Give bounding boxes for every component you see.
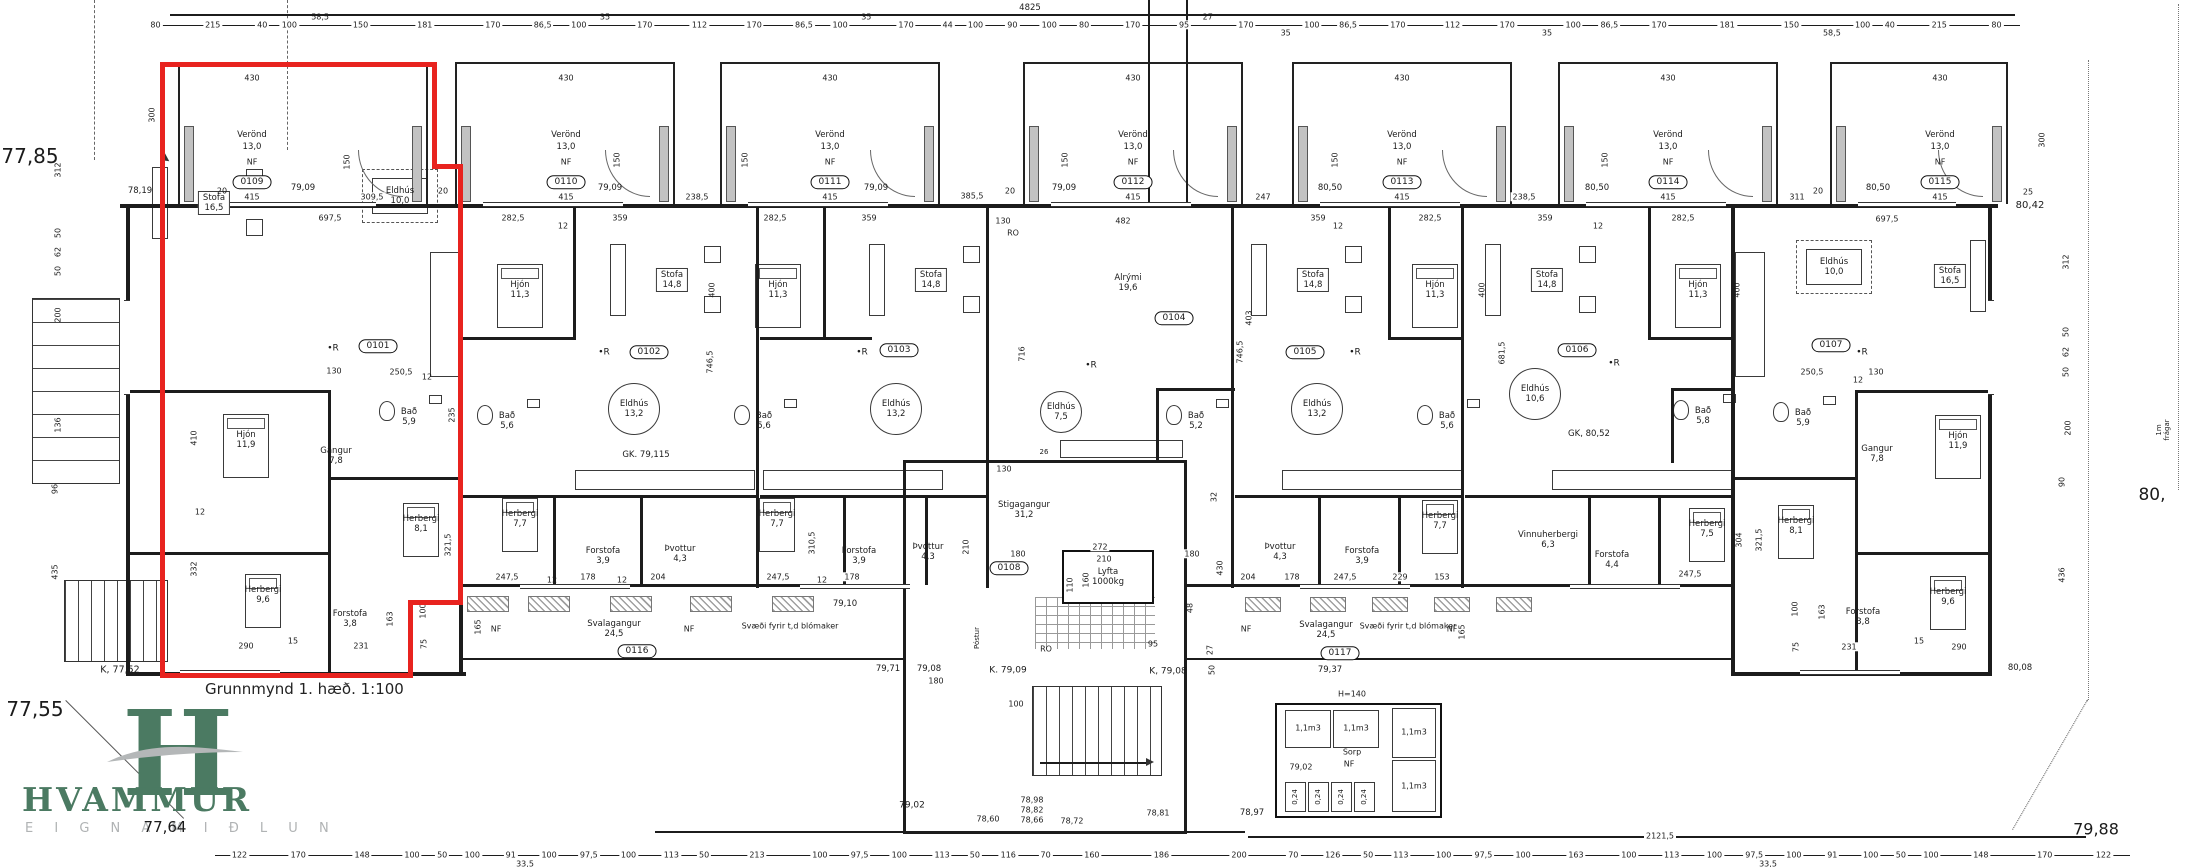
- annotation: K, 77,52: [100, 664, 139, 675]
- wall: [1388, 204, 1391, 340]
- sorp-label: Sorp: [1343, 747, 1361, 756]
- window-strip: [483, 202, 623, 207]
- sorp-label: NF: [1344, 759, 1355, 768]
- wall: [1231, 204, 1234, 588]
- annotation: 96: [50, 484, 59, 494]
- annotation: 332: [189, 561, 198, 576]
- area-label: Stigagangur 31,2: [998, 500, 1050, 520]
- top-dimension: 86,5: [532, 20, 554, 29]
- bottom-dimension: 100: [890, 850, 909, 859]
- chair: [1579, 246, 1596, 263]
- top-dimension: 170: [1498, 20, 1517, 29]
- annotation: 12: [195, 507, 205, 516]
- wall: [1648, 204, 1651, 340]
- bottom-dimension: 100: [1784, 850, 1803, 859]
- porch-elevation: 80,50: [1585, 183, 1609, 193]
- wall: [1465, 495, 1733, 498]
- porch-label: Verönd: [237, 130, 267, 140]
- top-dimension: 112: [690, 20, 709, 29]
- porch-nf: NF: [1663, 157, 1674, 166]
- room-label: Eldhús 10,0: [386, 186, 414, 206]
- top-dimension: 170: [1388, 20, 1407, 29]
- annotation: 290: [1949, 642, 1968, 651]
- smoke-detector-marker: •R: [856, 348, 868, 359]
- room-label: Gangur 7,8: [1861, 444, 1892, 464]
- annotation: 290: [236, 641, 255, 650]
- annotation: 77,55: [6, 698, 63, 722]
- porch-number: 0114: [1649, 175, 1688, 189]
- bottom-dimension: 170: [289, 850, 308, 859]
- annotation: 78,72: [1061, 816, 1084, 825]
- porch-pier: [1029, 126, 1039, 202]
- sorp-label: 0,24: [1314, 789, 1322, 805]
- annotation: Póstur: [973, 627, 981, 649]
- sorp-label: 1,1m3: [1401, 727, 1427, 736]
- annotation: 79,71: [876, 664, 900, 674]
- top-dimension: 58,5: [311, 12, 329, 21]
- annotation: 300: [2037, 132, 2046, 147]
- annotation: 15: [288, 636, 298, 645]
- site-line: [2178, 4, 2179, 490]
- annotation: 136: [53, 417, 62, 432]
- chair: [1579, 296, 1596, 313]
- bottom-dimension: 100: [619, 850, 638, 859]
- toilet: [1773, 402, 1789, 422]
- annotation: 12: [547, 575, 557, 584]
- sorp-label: 0,24: [1360, 789, 1368, 805]
- planter-note: Svæði fyrir t,d blómaker: [1360, 621, 1457, 630]
- room-label: Stofa 14,8: [656, 268, 688, 292]
- wall: [1648, 337, 1734, 340]
- stair-treads-upper: [1035, 597, 1155, 649]
- room-label: Bað 5,8: [1695, 406, 1711, 426]
- sink: [1823, 396, 1836, 405]
- annotation: 20: [217, 186, 227, 195]
- top-dimension: 100: [280, 20, 299, 29]
- bottom-dimension: 100: [810, 850, 829, 859]
- bottom-dimension: 33,5: [516, 859, 534, 867]
- chair: [1345, 246, 1362, 263]
- annotation: 79,08: [917, 664, 941, 674]
- bottom-dimension: 122: [2094, 850, 2113, 859]
- highlight-red-outline: [413, 600, 463, 605]
- bottom-dimension: 163: [1566, 850, 1585, 859]
- bottom-dimension: 50: [1894, 850, 1908, 859]
- annotation: 110: [1065, 577, 1074, 592]
- annotation: 312: [2061, 254, 2070, 269]
- porch-0115: [1830, 62, 2008, 204]
- chair: [963, 246, 980, 263]
- sofa: [869, 244, 885, 316]
- wall: [1735, 477, 1857, 480]
- room-label: Bað 5,6: [1439, 411, 1455, 431]
- wall: [1184, 660, 1187, 834]
- bottom-dimension: 70: [1286, 850, 1300, 859]
- sink: [527, 399, 540, 408]
- annotation: 100: [1790, 601, 1799, 616]
- room-label: Stofa 14,8: [1297, 268, 1329, 292]
- sofa: [1485, 244, 1501, 316]
- top-dimension: 100: [830, 20, 849, 29]
- sorp-label: 78,97: [1240, 808, 1264, 818]
- area-label: Lyfta 1000kg: [1092, 567, 1124, 587]
- bottom-dimension: 113: [662, 850, 681, 859]
- annotation: 282,5: [762, 213, 789, 222]
- entrance-stair: [64, 580, 168, 662]
- room-label: Þvottur 4,3: [913, 542, 944, 562]
- wall: [1187, 658, 1733, 660]
- porch-nf: NF: [1128, 157, 1139, 166]
- annotation: 746,5: [705, 351, 714, 374]
- porch-pier: [1762, 126, 1772, 202]
- wall: [925, 495, 928, 585]
- wall: [553, 495, 556, 585]
- annotation: 50: [2061, 367, 2070, 377]
- highlight-red-outline: [458, 164, 463, 605]
- annotation: 50: [1207, 665, 1216, 675]
- porch-elevation: 79,09: [864, 183, 888, 193]
- room-label: Eldhús 13,2: [882, 399, 910, 419]
- chair: [704, 296, 721, 313]
- room-label: Þvottur 4,3: [665, 544, 696, 564]
- wall: [760, 495, 988, 498]
- plan-title: Grunnmynd 1. hæð. 1:100: [205, 680, 404, 698]
- porch-area: 13,0: [821, 142, 840, 152]
- top-dimension: 35: [861, 12, 871, 21]
- annotation: 359: [1308, 213, 1327, 222]
- top-dimension: 100: [1040, 20, 1059, 29]
- porch-dim: 415: [1123, 192, 1142, 201]
- annotation: 250,5: [388, 367, 415, 376]
- annotation: 282,5: [1670, 213, 1697, 222]
- top-dimension: 181: [1718, 20, 1737, 29]
- logo-swoosh-icon: [105, 740, 245, 770]
- annotation: 385,5: [959, 191, 986, 200]
- kitchen-counter: [1735, 252, 1765, 377]
- room-label: Bað 5,9: [401, 407, 417, 427]
- room-label: Hjón 11,9: [1948, 431, 1967, 451]
- room-label: Forstofa 3,9: [842, 546, 876, 566]
- annotation: 1m frágar: [2155, 419, 2172, 441]
- bottom-dimension: 33,5: [1759, 859, 1777, 867]
- wall: [1158, 388, 1235, 391]
- top-dimension: 40: [255, 20, 269, 29]
- wall: [1184, 460, 1187, 663]
- top-dimension: 170: [483, 20, 502, 29]
- annotation: 20: [1005, 186, 1015, 195]
- porch-pier: [1836, 126, 1846, 202]
- highlight-red-outline: [160, 673, 413, 678]
- room-label: Herbergi 9,6: [245, 585, 282, 605]
- annotation: 247,5: [765, 572, 792, 581]
- annotation: K. 79,09: [989, 666, 1026, 677]
- sink: [1467, 399, 1480, 408]
- wall: [1148, 0, 1150, 204]
- highlight-red-outline: [160, 62, 165, 678]
- annotation: 321,5: [443, 534, 452, 557]
- wall: [1671, 388, 1674, 463]
- annotation: 62: [53, 247, 62, 257]
- top-dimension: 35: [1542, 28, 1552, 37]
- room-label: Herbergi 7,7: [502, 509, 539, 529]
- bottom-dimension: 200: [1229, 850, 1248, 859]
- sorp-label: H=140: [1338, 689, 1366, 698]
- annotation: 78,19: [128, 186, 152, 196]
- room-label: Hjón 11,9: [236, 430, 255, 450]
- window-strip: [1570, 584, 1680, 589]
- annotation: 716: [1017, 346, 1026, 361]
- annotation: 400: [707, 282, 716, 297]
- unit-number: 0104: [1155, 311, 1194, 325]
- annotation: 150: [740, 152, 749, 167]
- site-line: [2088, 60, 2089, 700]
- site-line: [94, 0, 95, 160]
- annotation: 150: [1330, 152, 1339, 167]
- outdoor-stair: [32, 298, 120, 484]
- bottom-dimension: 97,5: [578, 850, 600, 859]
- porch-dim: 430: [242, 73, 261, 82]
- toilet: [1166, 405, 1182, 425]
- kitchen-counter: [1970, 240, 1986, 312]
- top-dimension: 35: [600, 12, 610, 21]
- porch-pier: [726, 126, 736, 202]
- annotation: 247,5: [494, 572, 521, 581]
- annotation: 165: [1457, 624, 1466, 639]
- room-label: Hjón 11,3: [510, 280, 529, 300]
- top-dimension: 80: [1989, 20, 2003, 29]
- bottom-dimension: 113: [932, 850, 951, 859]
- wall: [573, 204, 576, 340]
- annotation: 231: [351, 641, 370, 650]
- annotation: 210: [1094, 554, 1113, 563]
- bottom-dimension: 100: [1619, 850, 1638, 859]
- window-strip: [1320, 202, 1460, 207]
- wall: [1235, 495, 1463, 498]
- porch-pier: [659, 126, 669, 202]
- annotation: 178: [1282, 572, 1301, 581]
- annotation: 400: [1477, 282, 1486, 297]
- annotation: 27: [1205, 645, 1214, 655]
- toilet: [1417, 405, 1433, 425]
- annotation: 78,60: [977, 814, 1000, 823]
- annotation: 235: [447, 407, 456, 422]
- annotation: 32: [1209, 492, 1218, 502]
- annotation: 12: [422, 372, 432, 381]
- smoke-detector-marker: •R: [1085, 361, 1097, 372]
- top-dimension: 150: [1782, 20, 1801, 29]
- wall: [823, 204, 826, 340]
- wall: [1673, 388, 1734, 391]
- porch-dim: 430: [556, 73, 575, 82]
- room-label: Hjón 11,3: [768, 280, 787, 300]
- smoke-detector-marker: •R: [1349, 348, 1361, 359]
- annotation: 681,5: [1497, 342, 1506, 365]
- room-label: Forstofa 4,4: [1595, 550, 1629, 570]
- porch-dim: 430: [1123, 73, 1142, 82]
- wall: [1858, 552, 1990, 555]
- top-dimension: 80: [1077, 20, 1091, 29]
- annotation: 282,5: [500, 213, 527, 222]
- window-strip: [124, 300, 130, 395]
- wall: [463, 495, 758, 498]
- annotation: 435: [50, 564, 59, 579]
- top-dimension: 86,5: [1337, 20, 1359, 29]
- unit-number: 0102: [630, 345, 669, 359]
- annotation: 250,5: [1799, 367, 1826, 376]
- nf-label: NF: [491, 624, 502, 633]
- annotation: 238,5: [684, 192, 711, 201]
- bottom-dimension: 100: [1861, 850, 1880, 859]
- porch-number: 0113: [1383, 175, 1422, 189]
- wall: [170, 14, 2015, 16]
- room-label: Hjón 11,3: [1688, 280, 1707, 300]
- planter-hatch: [772, 596, 814, 612]
- sofa: [1251, 244, 1267, 316]
- annotation: 180: [1008, 549, 1027, 558]
- wall: [756, 204, 759, 588]
- porch-dim: 430: [820, 73, 839, 82]
- chair: [963, 296, 980, 313]
- top-dimension: 86,5: [1598, 20, 1620, 29]
- top-dimension: 40: [1883, 20, 1897, 29]
- annotation: 359: [610, 213, 629, 222]
- porch-pier: [1496, 126, 1506, 202]
- annotation: 20: [438, 186, 448, 195]
- porch-area: 13,0: [1931, 142, 1950, 152]
- top-dimension: 58,5: [1823, 28, 1841, 37]
- room-label: Bað 5,6: [756, 411, 772, 431]
- porch-label: Verönd: [1387, 130, 1417, 140]
- bottom-dimension: 97,5: [1743, 850, 1765, 859]
- bottom-dimension: 213: [747, 850, 766, 859]
- porch-nf: NF: [247, 157, 258, 166]
- toilet: [734, 405, 750, 425]
- area-number: 0117: [1321, 646, 1360, 660]
- stair-arrow: [1040, 762, 1150, 764]
- top-dimension: 215: [203, 20, 222, 29]
- bottom-dimension: 148: [1971, 850, 1990, 859]
- floor-plan: Grunnmynd 1. hæð. 1:100 H HVAMMUR E I G …: [0, 0, 2185, 867]
- top-dimension: 95: [1177, 20, 1191, 29]
- annotation: 50: [53, 228, 62, 238]
- annotation: 482: [1113, 216, 1132, 225]
- toilet: [379, 401, 395, 421]
- annotation: 2121,5: [1644, 831, 1676, 840]
- porch-number: 0110: [547, 175, 586, 189]
- window-strip: [748, 202, 888, 207]
- annotation: 746,5: [1235, 341, 1244, 364]
- annotation: 304: [1734, 532, 1743, 547]
- porch-number: 0109: [233, 175, 272, 189]
- wall: [328, 390, 331, 675]
- area-label: Svalagangur 24,5: [587, 619, 640, 639]
- annotation: 50: [53, 266, 62, 276]
- window-strip: [1800, 670, 1900, 675]
- annotation: 300: [147, 107, 156, 122]
- area-number: 0108: [990, 561, 1029, 575]
- highlight-red-outline: [408, 600, 413, 678]
- annotation: 210: [961, 539, 970, 554]
- porch-label: Verönd: [1653, 130, 1683, 140]
- annotation: 430: [1215, 560, 1224, 575]
- window-strip: [520, 584, 630, 589]
- room-label: Forstofa 3,8: [333, 609, 367, 629]
- porch-label: Verönd: [815, 130, 845, 140]
- porch-pier: [924, 126, 934, 202]
- bottom-dimension: 100: [1921, 850, 1940, 859]
- bottom-dimension: 70: [1039, 850, 1053, 859]
- room-label: Vinnuherbergi 6,3: [1518, 530, 1578, 550]
- leader-line: [2012, 700, 2088, 830]
- annotation: 90: [2057, 477, 2066, 487]
- window-strip: [1988, 300, 1994, 395]
- annotation: 247: [1253, 192, 1272, 201]
- porch-area: 13,0: [557, 142, 576, 152]
- room-label: Herbergi 7,7: [1422, 511, 1459, 531]
- room-label: GK. 79,115: [622, 450, 669, 460]
- annotation: 160: [1081, 572, 1090, 587]
- window-strip: [1051, 202, 1191, 207]
- room-label: Forstofa 3,9: [1345, 546, 1379, 566]
- porch-area: 13,0: [1659, 142, 1678, 152]
- top-dimension: 170: [635, 20, 654, 29]
- bottom-dimension: 100: [1434, 850, 1453, 859]
- porch-dim: 415: [1392, 192, 1411, 201]
- annotation: 150: [1060, 152, 1069, 167]
- annotation: K, 79,08: [1149, 667, 1186, 678]
- bottom-dimension: 50: [435, 850, 449, 859]
- toilet: [477, 405, 493, 425]
- nf-label: NF: [1241, 624, 1252, 633]
- room-label: Eldhús 10,0: [1820, 257, 1848, 277]
- room-label: Þvottur 4,3: [1265, 542, 1296, 562]
- chair: [704, 246, 721, 263]
- room-label: Bað 5,9: [1795, 408, 1811, 428]
- porch-nf: NF: [825, 157, 836, 166]
- room-label: Hjón 11,3: [1425, 280, 1444, 300]
- unit-number: 0106: [1558, 343, 1597, 357]
- annotation: 78,81: [1147, 808, 1170, 817]
- wall: [1318, 495, 1321, 585]
- smoke-detector-marker: •R: [1856, 348, 1868, 359]
- wall: [760, 337, 872, 340]
- wall: [1461, 204, 1464, 588]
- porch-dim: 415: [820, 192, 839, 201]
- porch-nf: NF: [1397, 157, 1408, 166]
- room-label: Eldhús 13,2: [1303, 399, 1331, 419]
- annotation: 309,5: [359, 192, 386, 201]
- top-dimension: 181: [415, 20, 434, 29]
- annotation: 79,10: [833, 599, 857, 609]
- annotation: 12: [817, 575, 827, 584]
- smoke-detector-marker: •R: [598, 348, 610, 359]
- top-dimension: 170: [896, 20, 915, 29]
- annotation: 410: [189, 430, 198, 445]
- annotation: 100: [1006, 699, 1025, 708]
- porch-area: 13,0: [243, 142, 262, 152]
- room-label: Herbergi 8,1: [403, 514, 440, 534]
- window-strip: [1858, 202, 1956, 207]
- top-dimension: 35: [1281, 28, 1291, 37]
- top-dimension: 100: [1853, 20, 1872, 29]
- annotation: 247,5: [1677, 569, 1704, 578]
- top-dimension: 215: [1930, 20, 1949, 29]
- kitchen-counter: [430, 252, 460, 377]
- annotation: 130: [993, 216, 1012, 225]
- bottom-dimension: 100: [1705, 850, 1724, 859]
- annotation: 26: [1040, 448, 1049, 456]
- top-dimension: 100: [569, 20, 588, 29]
